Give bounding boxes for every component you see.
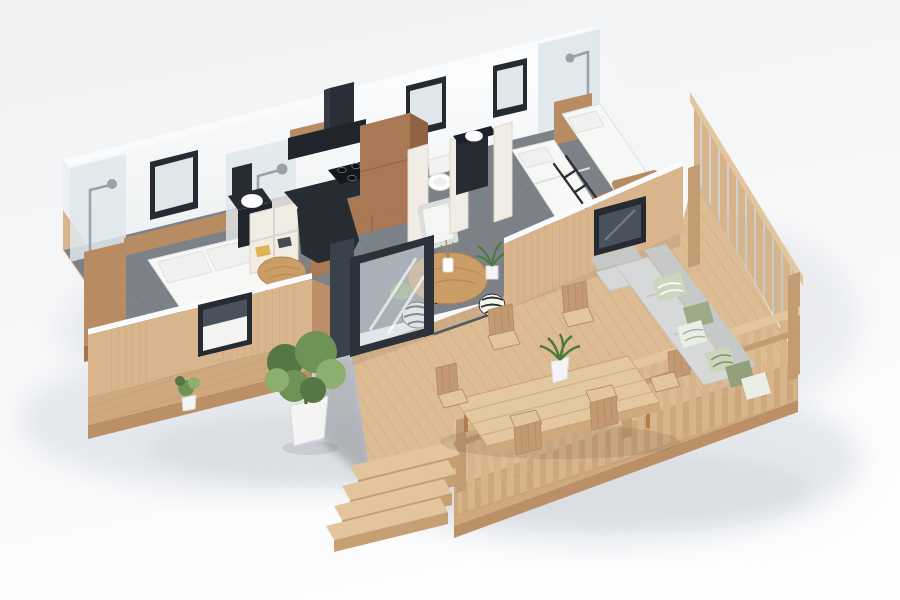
door-post xyxy=(424,235,434,337)
scene-svg xyxy=(0,0,900,600)
railing-post xyxy=(688,164,700,268)
round-sink xyxy=(465,131,483,142)
floorplan-render-image xyxy=(0,0,900,600)
shower-head-icon xyxy=(107,179,117,189)
shower-head-icon xyxy=(566,54,575,63)
round-sink xyxy=(241,194,263,208)
partition-wall xyxy=(494,122,512,222)
door-post xyxy=(350,255,360,357)
window-shower-room xyxy=(493,58,527,118)
shower-head-icon xyxy=(277,164,288,175)
railing-post xyxy=(788,305,798,381)
window-master xyxy=(150,150,198,220)
